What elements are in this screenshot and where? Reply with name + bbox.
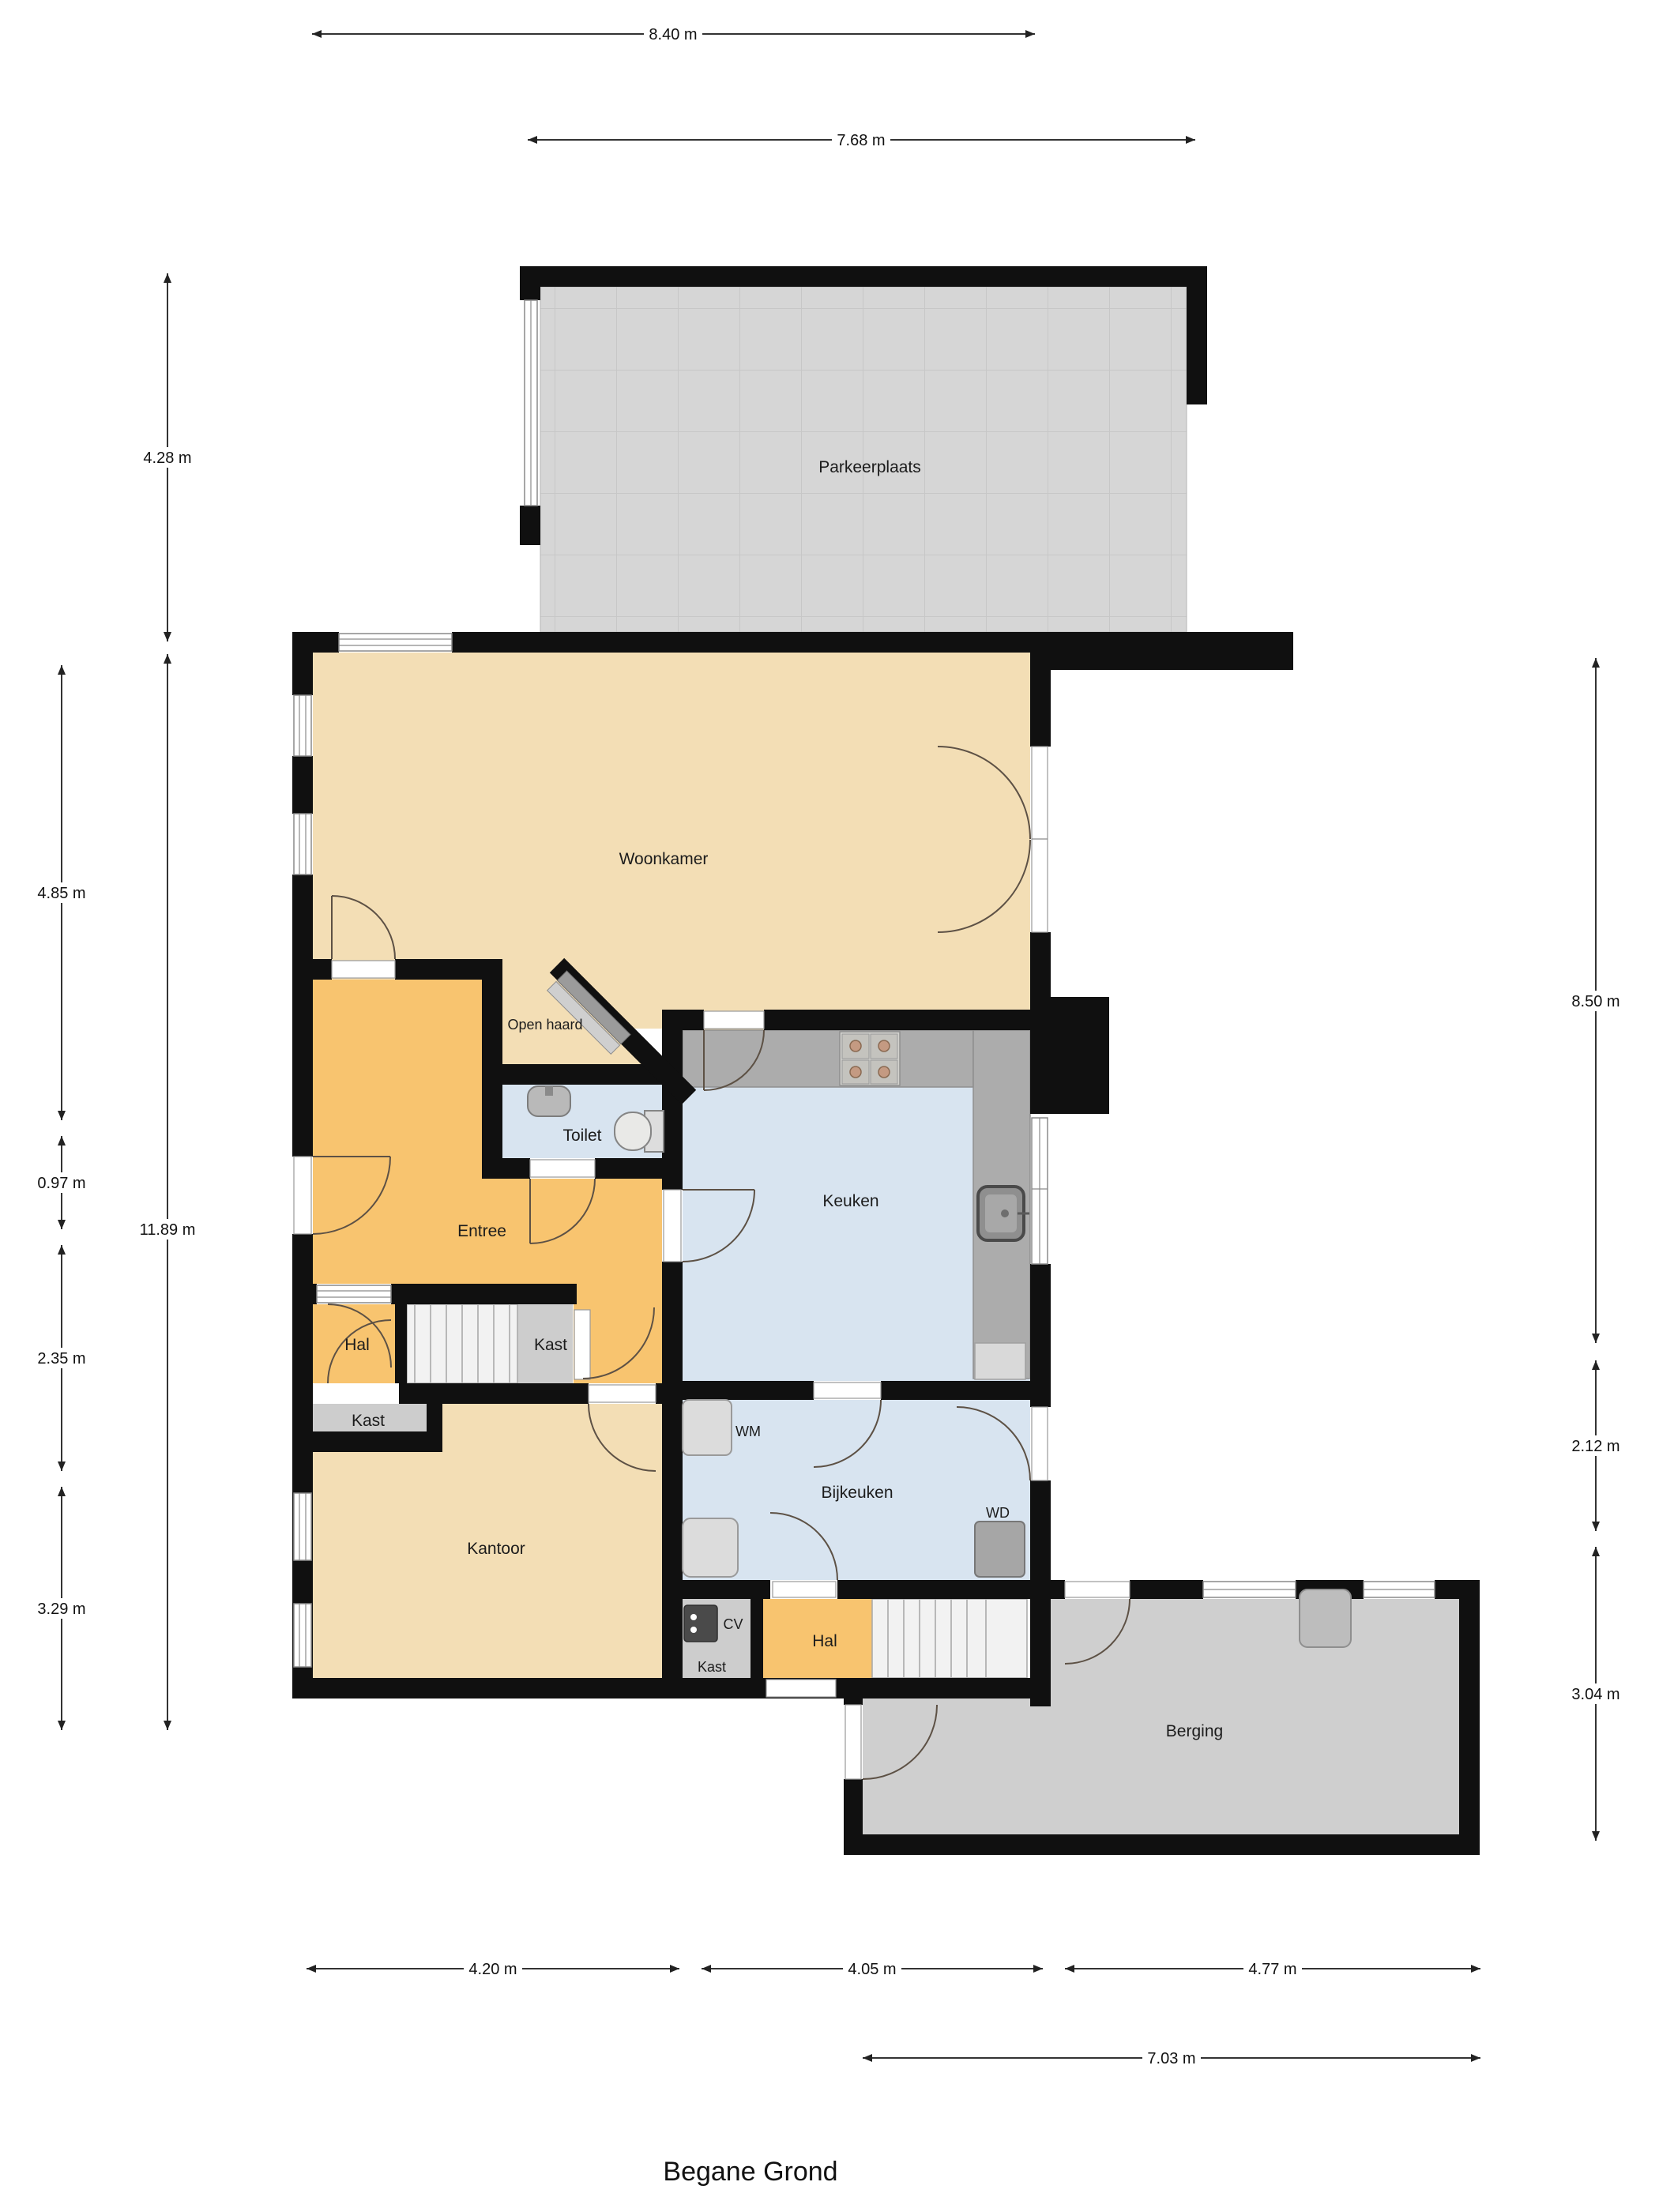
hal-exterior-door-frame xyxy=(766,1680,836,1697)
room-label-parkeerplaats: Parkeerplaats xyxy=(818,458,921,476)
entree-keuken-door-frame xyxy=(664,1190,681,1262)
toilet-door-frame xyxy=(530,1160,595,1177)
window-kantoor-left-2 xyxy=(294,1604,311,1667)
room-label-woonkamer: Woonkamer xyxy=(619,850,709,868)
room-label-hal-upper: Hal xyxy=(344,1336,370,1354)
kitchen-appliance xyxy=(975,1343,1025,1379)
dim-parkeerplaats-width: 7.68 m xyxy=(837,132,885,149)
feature-label-open-haard: Open haard xyxy=(507,1017,582,1033)
room-label-kast-stairs: Kast xyxy=(534,1336,567,1354)
dim-parkeerplaats-height: 4.28 m xyxy=(143,450,191,467)
kantoor-door-frame xyxy=(589,1385,656,1402)
dim-keuken-width: 4.05 m xyxy=(848,1961,896,1978)
berging-unit-icon xyxy=(1300,1589,1351,1647)
dim-house-total-height: 11.89 m xyxy=(140,1221,196,1239)
toilet-icon xyxy=(615,1111,664,1152)
washing-machine-icon xyxy=(683,1400,732,1455)
dim-kantoor-width: 4.20 m xyxy=(468,1961,517,1978)
stairs-upper xyxy=(407,1304,517,1383)
floorplan-canvas: Parkeerplaats Woonkamer Open haard Toile… xyxy=(0,0,1659,2212)
dim-house-top-width: 8.40 m xyxy=(649,26,697,43)
kast-stairs-door-frame xyxy=(574,1310,590,1379)
stairs-lower xyxy=(872,1599,1027,1678)
bijkeuken-right-door-frame xyxy=(1032,1407,1048,1480)
front-door-frame xyxy=(294,1157,311,1234)
french-doors-frame xyxy=(1032,747,1048,932)
dim-berging-width: 4.77 m xyxy=(1248,1961,1296,1978)
window-berging-top-1 xyxy=(1203,1582,1296,1597)
woonkamer-keuken-door-frame xyxy=(704,1011,764,1029)
room-label-kast-pocket: Kast xyxy=(352,1412,385,1430)
window-top-woonkamer xyxy=(339,634,452,651)
berging-top-door-frame xyxy=(1065,1582,1130,1597)
plan-title: Begane Grond xyxy=(663,2157,837,2187)
dryer-icon xyxy=(975,1522,1025,1577)
window-kantoor-left-1 xyxy=(294,1493,311,1560)
dim-entree-height: 2.35 m xyxy=(37,1350,85,1367)
room-label-hal-lower: Hal xyxy=(812,1632,837,1650)
window-keuken-right xyxy=(1032,1118,1048,1264)
feature-label-cv: CV xyxy=(723,1616,743,1632)
room-label-toilet: Toilet xyxy=(562,1127,601,1145)
woonkamer-entree-door-frame xyxy=(332,961,395,978)
stove-icon xyxy=(840,1032,900,1085)
room-label-berging: Berging xyxy=(1166,1722,1223,1740)
window-woonkamer-left-2 xyxy=(294,814,311,875)
dim-woonkamer-height: 4.85 m xyxy=(37,885,85,902)
keuken-bijkeuken-door-frame xyxy=(814,1382,881,1398)
dim-bijkeuken-height: 2.12 m xyxy=(1571,1438,1619,1455)
cv-boiler-icon xyxy=(684,1605,717,1642)
dim-right-upper-height: 8.50 m xyxy=(1571,993,1619,1010)
room-label-entree: Entree xyxy=(457,1222,506,1240)
dim-berging-height: 3.04 m xyxy=(1571,1686,1619,1703)
feature-label-wm: WM xyxy=(735,1424,761,1439)
berging-left-door-frame xyxy=(845,1705,861,1779)
room-label-kantoor: Kantoor xyxy=(467,1540,525,1558)
hal-bijkeuken-door-frame xyxy=(773,1582,836,1597)
dim-toilet-strip-height: 0.97 m xyxy=(37,1175,85,1192)
bijkeuken-appliance-icon xyxy=(683,1518,738,1577)
window-woonkamer-left-1 xyxy=(294,695,311,756)
dim-kantoor-height: 3.29 m xyxy=(37,1601,85,1618)
window-hal-upper xyxy=(317,1285,391,1303)
room-label-kast-cv: Kast xyxy=(698,1659,726,1675)
room-label-bijkeuken: Bijkeuken xyxy=(821,1484,893,1502)
window-parkeerplaats-left xyxy=(525,300,537,506)
window-berging-top-2 xyxy=(1364,1582,1435,1597)
feature-label-wd: WD xyxy=(986,1505,1010,1521)
toilet-sink-icon xyxy=(528,1086,570,1116)
kitchen-sink-icon xyxy=(978,1187,1029,1240)
dim-berging-total-width: 7.03 m xyxy=(1147,2050,1195,2067)
room-label-keuken: Keuken xyxy=(822,1192,878,1210)
